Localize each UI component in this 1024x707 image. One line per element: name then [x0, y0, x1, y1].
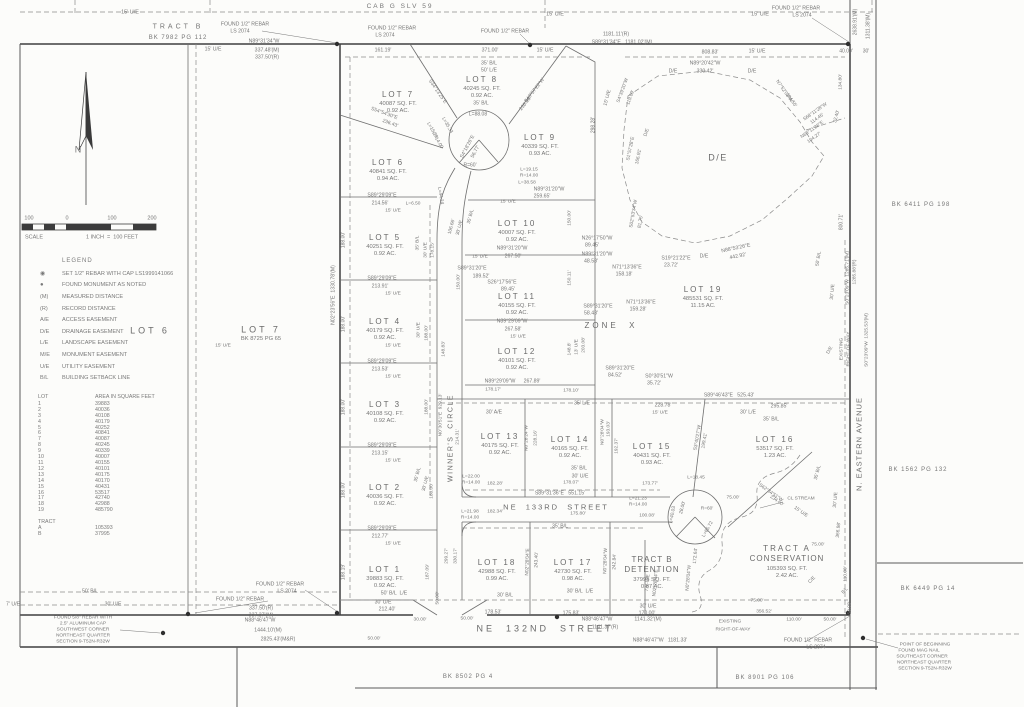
map-label: 15' U/E	[546, 12, 564, 18]
map-label: 35' B/L	[763, 417, 779, 422]
legend-item: B/LBUILDING SETBACK LINE	[40, 372, 210, 384]
map-label: 150.11'	[569, 270, 574, 285]
map-label: FOUND 1/2" REBAR	[256, 582, 304, 587]
map-label: 337.50'(R)	[249, 606, 273, 611]
map-label: N88°46'47"W 1181.33'	[633, 638, 688, 643]
map-label: 89.45'	[585, 243, 599, 248]
map-label: 172.64'	[694, 548, 700, 564]
map-label: S26°17'56"E	[487, 280, 516, 285]
legend-abbr: (M)	[40, 294, 62, 300]
map-label: RIGHT-OF-WAY	[848, 332, 853, 367]
legend-item-text: LANDSCAPE EASEMENT	[62, 340, 128, 346]
map-label: 40431 SQ. FT.	[633, 454, 670, 460]
lot-area-value: 485790	[95, 508, 155, 514]
map-label: S89°46'43"E 525.43'	[704, 393, 754, 398]
scale-tick: 1 INCH = 100 FEET	[86, 235, 138, 241]
map-label: 148.83'	[443, 341, 448, 357]
map-label: S89°29'09"E	[367, 359, 396, 364]
map-label: 134.80'	[840, 74, 845, 90]
map-label: 0.93 AC.	[529, 152, 551, 158]
map-label: 30.00'	[414, 619, 427, 624]
map-label: 213.15'	[372, 451, 389, 456]
book-ref: BK 8901 PG 106	[735, 675, 794, 681]
map-label: N71°13'36"E	[626, 300, 655, 305]
scale-tick: 100	[24, 216, 33, 222]
map-label: 173.77'	[642, 483, 658, 488]
map-label: 58.43'	[584, 311, 598, 316]
plat-map-page: 15' U/ECAB G SLV 5915' U/E15' U/ETRACT B…	[0, 0, 1024, 707]
map-label: R=14.00	[429, 132, 442, 150]
map-label: 30' U/E	[834, 492, 840, 508]
map-label: FOUND 1/2" REBAR	[772, 6, 820, 11]
map-label: 187.09'	[427, 564, 432, 580]
map-label: 81.75'	[639, 215, 646, 229]
map-label: 243.40'	[535, 552, 540, 568]
map-label: 110.00'	[786, 619, 801, 624]
map-label: 40.00'	[839, 50, 852, 55]
map-label: 2825.43'(M&R)	[261, 637, 296, 642]
map-label: N0°28'24"W	[526, 425, 531, 451]
lot-1-label: LOT 1	[369, 566, 401, 574]
map-label: LS 2074	[792, 13, 811, 18]
map-label: 42730 SQ. FT.	[554, 570, 591, 576]
map-label: 203.08'	[583, 337, 588, 353]
map-label: 0.92 AC.	[374, 336, 396, 342]
legend: LEGEND ◉SET 1/2" REBAR WITH CAP LS199914…	[40, 258, 210, 384]
map-label: 37995 SQ. FT.	[633, 578, 670, 584]
map-label: 236.96'	[519, 96, 533, 112]
map-label: 188.00'	[426, 325, 431, 341]
scale-tick: 200	[147, 216, 156, 222]
map-label: 53517 SQ. FT.	[756, 447, 793, 453]
map-label: 40245 SQ. FT.	[463, 87, 500, 93]
map-label: 15' U/E	[603, 90, 612, 107]
map-label: 40251 SQ. FT.	[366, 245, 403, 251]
map-label: 35' B/L	[415, 467, 423, 483]
legend-abbr: (R)	[40, 306, 62, 312]
map-label: 1285.88'(R)	[854, 260, 859, 285]
map-label: 228.16'	[535, 430, 540, 446]
map-label: 15' U/E	[205, 47, 222, 52]
map-label: 1444.10'(M)	[254, 628, 282, 633]
map-label: 30' U/E	[457, 220, 466, 236]
map-label: S89°31'20"E	[583, 304, 612, 309]
map-label: 40108 SQ. FT.	[366, 412, 403, 418]
street-eastern-avenue: N. EASTERN AVENUE	[855, 397, 863, 491]
tract-a-label: TRACT A	[763, 545, 811, 553]
lot-number: B	[38, 532, 95, 538]
map-label: 75.00'	[727, 497, 740, 502]
legend-item-text: DRAINAGE EASEMENT	[62, 329, 124, 335]
lot-12-label: LOT 12	[498, 348, 537, 356]
map-label: 1141.32'(M)	[634, 617, 661, 622]
lot-10-label: LOT 10	[498, 220, 537, 228]
legend-title: LEGEND	[62, 258, 210, 264]
map-label: D/E	[669, 69, 678, 74]
map-label: S89°29'09"E	[367, 526, 396, 531]
map-label: 40165 SQ. FT.	[551, 447, 588, 453]
map-label: 30' U/E	[375, 600, 392, 605]
map-label: S89°29'09"E	[367, 443, 396, 448]
map-label: 39883 SQ. FT.	[366, 577, 403, 583]
zone-x-label: ZONE X	[584, 322, 637, 330]
map-label: 40087 SQ. FT.	[379, 102, 416, 108]
map-label: B/L	[841, 587, 849, 595]
map-label: 7' U/E	[6, 602, 20, 607]
map-label: 213.53'	[372, 367, 389, 372]
legend-item: (M)MEASURED DISTANCE	[40, 291, 210, 303]
map-label: L=18.45	[687, 477, 704, 482]
map-label: 188.00'	[342, 316, 347, 332]
lot-9-label: LOT 9	[524, 134, 556, 142]
map-label: 0.92 AC.	[374, 584, 396, 590]
map-label: FOUND 1/2" REBAR	[481, 29, 529, 34]
map-label: N89°20'42"W	[690, 61, 721, 66]
map-label: 150.00'	[458, 274, 463, 290]
map-label: S89°31'20"E	[457, 266, 486, 271]
map-label: 295.85'	[771, 404, 788, 409]
map-label: 228.78'	[655, 403, 672, 408]
map-label: 800.71'	[840, 214, 845, 230]
legend-item-text: ACCESS EASEMENT	[62, 317, 117, 323]
map-label: FOUND 1/2" REBAR	[221, 22, 269, 27]
map-label: S89°31'34"E 1181.02'(M)	[592, 40, 653, 45]
map-label: 0.92 AC.	[559, 454, 581, 460]
map-label: 15' U/E	[385, 293, 401, 298]
map-label: 1141.37'(R)	[592, 625, 619, 630]
map-label: 15' U/E	[537, 48, 554, 53]
map-label: SECTION 9-T52N-R32W	[56, 641, 110, 646]
map-label: 158.18'	[616, 272, 633, 277]
map-label: 40101 SQ. FT.	[498, 359, 535, 365]
legend-item-text: MONUMENT EASEMENT	[62, 352, 127, 358]
map-label: 84.52'	[608, 373, 622, 378]
map-label: 299.27'	[446, 548, 451, 564]
legend-item-text: MEASURED DISTANCE	[62, 294, 123, 300]
tract-b-label: TRACT B	[631, 556, 672, 564]
map-label: 15' U/E	[751, 12, 769, 18]
map-label: 0.92 AC.	[374, 502, 396, 508]
map-label: 213.91'	[372, 284, 389, 289]
map-label: DETENTION	[624, 566, 679, 574]
book-ref: BK 1562 PG 132	[888, 467, 947, 473]
lot-4-label: LOT 4	[369, 318, 401, 326]
map-label: R=14.00	[462, 482, 480, 487]
map-label: 0.93 AC.	[641, 461, 663, 467]
map-label: 30' U/E	[572, 474, 589, 479]
map-label: N02°28'04"E	[526, 548, 532, 575]
map-label: N89°31'20"W	[534, 187, 565, 192]
map-label: 188.00'	[426, 399, 431, 415]
map-label: 15' U/E	[385, 460, 401, 465]
map-label: R=60'	[701, 508, 714, 513]
map-label: 119.09'	[627, 90, 637, 106]
map-label: 267.89'	[524, 379, 541, 384]
lot-19-label: LOT 19	[684, 286, 723, 294]
map-label: 182.34'	[487, 511, 503, 516]
lot-table-row: 19485790	[38, 508, 155, 514]
map-label: 15' U/E	[500, 201, 516, 206]
map-label: N71°13'36"E	[612, 265, 641, 270]
map-label: N89°29'09"W	[497, 319, 528, 324]
map-label: 337.48'(M)	[255, 48, 280, 53]
lot-area-value: 37995	[95, 532, 155, 538]
map-label: 30' U/E	[640, 604, 657, 609]
map-label: 178.53'	[485, 610, 502, 615]
map-label: 212.77'	[372, 534, 389, 539]
drainage-easement-label: D/E	[708, 154, 728, 163]
map-label: N02°23'56"E 1330.78'(M)	[331, 265, 336, 325]
book-ref: BK 6449 PG 14	[901, 586, 956, 592]
map-label: 161.19'	[375, 48, 392, 53]
map-label: 175.80'	[570, 513, 586, 518]
map-label: 298.28'	[592, 117, 597, 133]
map-label: 48.58'	[584, 259, 598, 264]
map-label: LS 2074	[375, 33, 394, 38]
map-label: 330.42'	[697, 69, 714, 74]
lot-17-label: LOT 17	[554, 559, 593, 567]
map-label: SECTION 9-T52N-R32W	[898, 668, 952, 673]
legend-item-text: RECORD DISTANCE	[62, 306, 116, 312]
map-label: 40036 SQ. FT.	[366, 495, 403, 501]
map-label: S89°29'09"E	[367, 193, 396, 198]
map-label: 0.94 AC.	[377, 177, 399, 183]
legend-abbr: U/E	[40, 364, 62, 370]
map-label: 30' U/E	[105, 602, 122, 607]
map-label: 0.92 AC.	[506, 311, 528, 317]
legend-item: ◉SET 1/2" REBAR WITH CAP LS1999141066	[40, 268, 210, 280]
map-label: 75.00'	[751, 600, 764, 605]
map-label: 35' B/L	[571, 466, 587, 471]
map-label: 0.92 AC.	[506, 238, 528, 244]
map-label: 15' U/E	[215, 345, 231, 350]
map-label: 40339 SQ. FT.	[521, 145, 558, 151]
map-label: 214.56'	[372, 201, 389, 206]
legend-item: M/EMONUMENT EASEMENT	[40, 349, 210, 361]
map-label: 0.92 AC.	[489, 451, 511, 457]
map-label: 50' B/L L/E	[381, 591, 407, 596]
lot-number: 19	[38, 508, 95, 514]
lot-6-label: LOT 6	[372, 159, 404, 167]
map-label: 166.91'	[636, 149, 644, 165]
map-label: 15' U/E	[385, 376, 401, 381]
legend-symbol-icon: ●	[40, 282, 62, 288]
map-label: 15' U/E	[385, 345, 401, 350]
scale-tick: SCALE	[25, 235, 43, 241]
map-label: R=60'	[463, 164, 476, 169]
lot-14-label: LOT 14	[551, 436, 590, 444]
lot-15-label: LOT 15	[633, 443, 672, 451]
map-label: 366.98'	[837, 522, 843, 538]
lot-8-label: LOT 8	[466, 76, 498, 84]
map-label: 50.00'	[849, 602, 854, 615]
map-label: 0.92 AC.	[374, 252, 396, 258]
lot-16-label: LOT 16	[756, 436, 795, 444]
map-label: R=14.00	[461, 517, 479, 522]
lot-table-header-lot: LOT	[38, 395, 95, 401]
map-label: 1181.11'(R)	[603, 32, 629, 37]
map-label: 0.92 AC.	[506, 366, 528, 372]
map-label: 75.00'	[812, 544, 825, 549]
legend-item: D/EDRAINAGE EASEMENT	[40, 326, 210, 338]
map-label: 442.92'	[729, 253, 747, 262]
legend-item-text: SET 1/2" REBAR WITH CAP LS1999141066	[62, 271, 173, 277]
map-label: 30' U/E	[418, 322, 423, 338]
map-label: L=35.33	[440, 117, 453, 135]
map-label: 30' B/L L/E	[567, 589, 593, 594]
map-label: 35' B/L	[481, 61, 497, 66]
map-label: 356.52'	[756, 611, 772, 616]
map-label: C/E	[808, 576, 817, 585]
map-label: 188.19'	[342, 564, 347, 580]
map-label: LS 2074	[277, 589, 296, 594]
map-label: 40155 SQ. FT.	[498, 304, 535, 310]
legend-abbr: M/E	[40, 352, 62, 358]
map-label: 40841 SQ. FT.	[369, 170, 406, 176]
map-label: 50' B/L	[82, 589, 98, 594]
lot-3-label: LOT 3	[369, 401, 401, 409]
map-label: 0.92 AC.	[471, 94, 493, 100]
legend-abbr: B/L	[40, 375, 62, 381]
map-label: S0°23'09"W 1285.71'(M)	[847, 251, 852, 305]
legend-abbr: L/E	[40, 340, 62, 346]
map-label: 30' L/E	[740, 410, 756, 415]
street-ne-133rd: NE 133RD STREET	[503, 503, 609, 511]
map-label: 42988 SQ. FT.	[478, 570, 515, 576]
map-label: L=88.08	[469, 113, 487, 118]
map-label: 188.00'	[431, 483, 436, 499]
map-label: 1311.38'(M)	[867, 13, 872, 39]
map-label: N0°28'04"W	[686, 565, 693, 591]
map-label: 0.99 AC.	[486, 577, 508, 583]
legend-abbr: D/E	[40, 329, 62, 335]
map-label: 15' D/E	[472, 256, 488, 261]
map-label: 56.77'	[471, 145, 482, 159]
legend-item: (R)RECORD DISTANCE	[40, 303, 210, 315]
map-label: 35.72'	[647, 381, 661, 386]
legend-item: U/EUTILITY EASEMENT	[40, 361, 210, 373]
map-label: S19°21'22"E	[661, 256, 690, 261]
map-label: 0.98 AC.	[562, 577, 584, 583]
book-ref: BK 8725 PG 65	[241, 337, 281, 343]
map-label: 337.50'(R)	[255, 55, 279, 60]
map-label: FOUND 1/2" REBAR	[368, 26, 416, 31]
map-label: D/E	[644, 128, 651, 137]
map-label: 30' A/E	[486, 410, 502, 415]
map-label: 40007 SQ. FT.	[498, 231, 535, 237]
legend-symbol-icon: ◉	[40, 270, 62, 277]
legend-item: ●FOUND MONUMENT AS NOTED	[40, 280, 210, 292]
adjacent-lot-7-label: LOT 7	[241, 326, 281, 335]
legend-item: A/EACCESS EASEMENT	[40, 314, 210, 326]
map-label: 267.50'	[505, 254, 522, 259]
map-label: L=6.50	[406, 203, 421, 208]
map-label: 30' B/L	[497, 593, 513, 598]
lot-table-row: B37995	[38, 532, 155, 538]
map-label: 13' U/E	[576, 339, 581, 355]
map-label: 178.15'	[432, 242, 437, 258]
tract-b-adjacent-label: TRACT B	[153, 24, 204, 31]
map-label: 50.00'	[437, 592, 442, 605]
map-label: R=14.00	[629, 504, 647, 509]
map-label: 199.41'	[702, 433, 709, 449]
map-label: 178.07'	[563, 482, 579, 487]
map-label: 30' U/E	[831, 284, 837, 300]
map-label: 35' B/L	[552, 524, 568, 529]
map-label: 35' B/L	[417, 236, 422, 251]
map-label: 148.8'	[569, 343, 574, 356]
map-label: N88°46'47"W	[245, 618, 276, 623]
map-label: 371.00'	[482, 48, 499, 53]
map-label: 330.17'	[455, 548, 460, 564]
map-label: D/E	[827, 346, 835, 355]
map-label: 35' B/L	[815, 465, 823, 481]
map-label: 35' B/L	[468, 209, 476, 225]
map-label: 30' U/E	[425, 242, 430, 258]
map-label: 1.23 AC.	[764, 454, 786, 460]
map-label: 242.84'	[613, 554, 618, 570]
map-label: N89°31'34"W	[249, 39, 280, 44]
map-label: 175.83'	[563, 611, 580, 616]
map-label: 50' B/L	[816, 251, 823, 266]
map-label: 35' L/E	[574, 401, 590, 406]
map-label: 15' U/E	[385, 210, 401, 215]
map-label: 50.00'	[824, 619, 837, 624]
map-label: EXISTING	[719, 621, 741, 626]
map-label: D/E	[748, 69, 757, 74]
lot-2-label: LOT 2	[369, 484, 401, 492]
map-label: 2638.91'(M)	[854, 9, 859, 36]
map-label: N88°46'47"W	[582, 617, 613, 622]
map-label: 15' U/E	[792, 507, 808, 520]
map-label: 15' U/E	[121, 10, 139, 16]
map-label: FOUND 1/2" REBAR	[216, 597, 264, 602]
map-label: S89°31'20"E	[605, 366, 634, 371]
map-label: 15' U/E	[385, 543, 401, 548]
map-label: 15' U/E	[749, 49, 766, 54]
map-label: S0°23'09"W 1325.53'(M)	[866, 313, 871, 367]
book-ref: BK 6411 PG 198	[892, 202, 951, 208]
lot-7-label: LOT 7	[382, 91, 414, 99]
map-label: S34°13'25"E	[427, 79, 447, 105]
street-winners-circle: WINNER'S CIRCLE	[448, 394, 455, 482]
map-label: D/E	[700, 254, 709, 259]
map-label: 23.72'	[664, 263, 678, 268]
map-label: 212.40'	[379, 607, 396, 612]
map-label: EXISTING	[841, 338, 846, 360]
map-label: 193.03'	[608, 421, 613, 437]
map-label: LS 2074	[230, 29, 249, 34]
map-label: 267.58'	[505, 327, 522, 332]
map-label: 50.00'	[461, 618, 474, 623]
map-label: 188.00'	[342, 232, 347, 248]
map-label: 178.17'	[485, 389, 501, 394]
map-label: 50' L/E	[481, 68, 497, 73]
map-label: 159.28'	[630, 307, 647, 312]
stream-label: CL STREAM	[787, 498, 814, 503]
map-label: 485531 SQ. FT.	[683, 297, 724, 303]
map-label: 188.00'	[342, 482, 347, 498]
lot-11-label: LOT 11	[498, 293, 536, 301]
map-label: 188.00'	[342, 399, 347, 415]
lot-5-label: LOT 5	[369, 234, 401, 242]
map-label: N89°29'09"W	[485, 379, 516, 384]
map-label: 50.00'	[368, 638, 381, 643]
map-label: N0°28'04"W	[604, 548, 610, 574]
map-label: 259.65'	[534, 194, 551, 199]
map-label: 178.10'	[563, 390, 579, 395]
legend-item-text: UTILITY EASEMENT	[62, 364, 115, 370]
